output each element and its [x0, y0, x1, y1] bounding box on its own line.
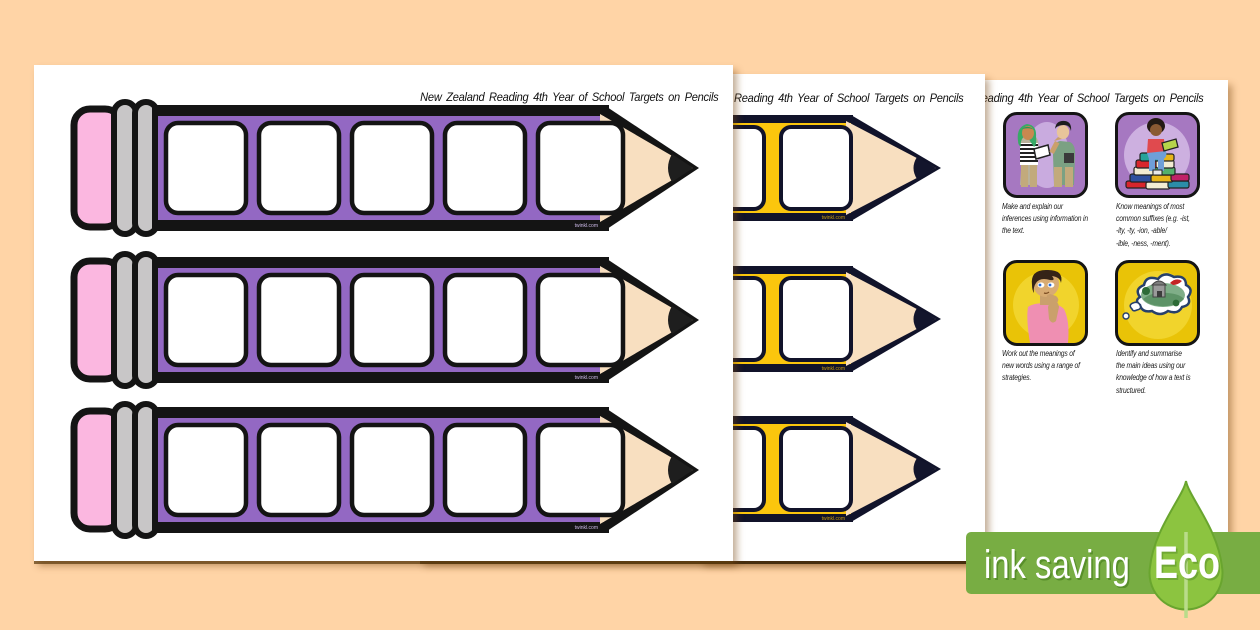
svg-text:twinkl.com: twinkl.com — [822, 516, 845, 522]
svg-text:twinkl.com: twinkl.com — [575, 375, 598, 381]
svg-text:twinkl.com: twinkl.com — [822, 366, 845, 372]
svg-text:twinkl.com: twinkl.com — [575, 525, 598, 531]
svg-text:twinkl.com: twinkl.com — [575, 223, 598, 229]
svg-text:twinkl.com: twinkl.com — [822, 215, 845, 221]
